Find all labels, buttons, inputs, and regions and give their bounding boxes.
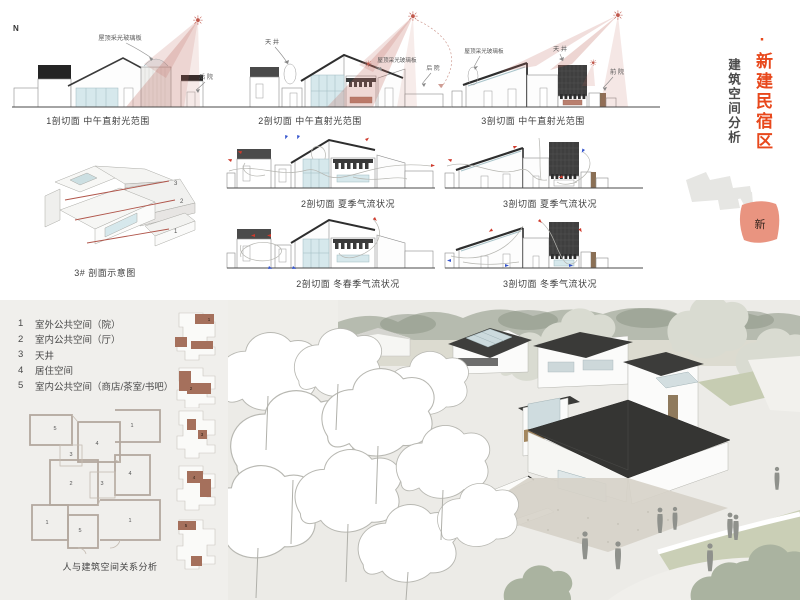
legend-label: 室内公共空间（厅）	[35, 332, 121, 346]
new-area-tag: 新	[755, 217, 766, 231]
svg-text:3: 3	[69, 452, 72, 458]
legend-number: 2	[18, 334, 35, 345]
dark-roof	[38, 65, 71, 79]
space-thumb-5: 5	[173, 516, 223, 572]
backyard-label: 后 院	[199, 73, 213, 81]
section2-summer-airflow-diagram	[225, 133, 440, 195]
legend-item: 3 天井	[18, 347, 173, 363]
section3-light-diagram: ☀ ☀ 屋顶采光玻璃板 天 井 前 院	[450, 8, 665, 120]
floor-plan: 5 4 1 3 2 3 4 1 5 1	[20, 400, 170, 558]
existing-area-shape	[686, 172, 752, 210]
section3-summer-airflow-diagram	[443, 136, 658, 195]
legend-item: 1 室外公共空间（院）	[18, 316, 173, 332]
lightwell-label: 天 井	[265, 38, 279, 46]
section2-summer-caption: 2剖切面 夏季气流状况	[258, 197, 438, 210]
legend-number: 3	[18, 349, 35, 360]
space-legend: 1 室外公共空间（院） 2 室内公共空间（厅） 3 天井 4 居住空间 5 室内…	[18, 316, 173, 394]
floor-plan-caption: 人与建筑空间关系分析	[30, 560, 190, 573]
sun-icon: ☀	[612, 8, 624, 23]
axon-caption: 3# 剖面示意图	[25, 266, 185, 279]
roof-glass-label: 屋顶采光玻璃板	[464, 47, 504, 55]
section3-winter-airflow-diagram	[443, 216, 658, 275]
roof-glass-label: 屋顶采光玻璃板	[377, 56, 417, 64]
perspective-rendering	[228, 300, 800, 600]
legend-label: 室外公共空间（院）	[35, 317, 121, 331]
legend-label: 居住空间	[35, 363, 73, 377]
svg-text:1: 1	[130, 423, 133, 429]
section2-winter-airflow-diagram	[225, 213, 440, 275]
svg-text:4: 4	[95, 441, 98, 447]
space-thumb-3: 3	[173, 408, 223, 460]
legend-label: 室内公共空间（商店/茶室/书吧）	[35, 379, 173, 393]
presentation-board: N ·新建民宿区 建筑空间分析 新 ☀ 屋顶采光玻璃板 后 院	[0, 0, 800, 600]
backyard-label: 后 院	[426, 64, 439, 72]
svg-text:1: 1	[45, 520, 48, 526]
section1-light-diagram: ☀ 屋顶采光玻璃板 后 院	[8, 12, 258, 122]
legend-number: 4	[18, 365, 35, 376]
sun-icon-small: ☀	[589, 58, 597, 68]
legend-item: 4 居住空间	[18, 363, 173, 379]
page-title: ·新建民宿区	[750, 30, 775, 152]
section3-winter-caption: 3剖切面 冬季气流状况	[460, 277, 640, 290]
sun-icon: ☀	[192, 13, 204, 28]
space-thumb-2: 2	[173, 366, 223, 408]
lightwell-label: 天 井	[553, 45, 567, 53]
frontyard-label: 前 院	[610, 68, 624, 76]
section2-winter-caption: 2剖切面 冬春季气流状况	[258, 277, 438, 290]
section3-light-caption: 3剖切面 中午直射光范围	[443, 114, 623, 127]
svg-text:5: 5	[78, 528, 81, 534]
roof-glass-label: 屋顶采光玻璃板	[98, 34, 141, 42]
legend-label: 天井	[35, 348, 54, 362]
svg-text:5: 5	[53, 426, 56, 432]
legend-item: 5 室内公共空间（商店/茶室/书吧）	[18, 378, 173, 394]
sun-icon-small: ☀	[364, 59, 372, 69]
space-thumb-4: 4	[173, 464, 223, 512]
plan-walls	[30, 410, 160, 548]
legend-number: 5	[18, 380, 35, 391]
section2-light-diagram: ☀ ☀ 天 井 屋顶采光玻璃板 后 院	[245, 8, 480, 120]
svg-text:4: 4	[128, 471, 131, 477]
page-subtitle: 建筑空间分析	[724, 58, 743, 145]
legend-number: 1	[18, 318, 35, 329]
svg-text:3: 3	[100, 481, 103, 487]
glazing	[76, 88, 118, 107]
axon-diagram: 3 2 1	[25, 140, 220, 262]
location-minimap: 新	[680, 150, 792, 260]
svg-text:1: 1	[128, 518, 131, 524]
section3-summer-caption: 3剖切面 夏季气流状况	[460, 197, 640, 210]
legend-item: 2 室内公共空间（厅）	[18, 332, 173, 348]
space-thumb-1: 1	[173, 310, 223, 362]
section1-light-caption: 1剖切面 中午直射光范围	[8, 114, 188, 127]
wood-door	[668, 395, 678, 419]
svg-text:2: 2	[69, 481, 72, 487]
section2-light-caption: 2剖切面 中午直射光范围	[220, 114, 400, 127]
sun-icon: ☀	[407, 9, 419, 24]
